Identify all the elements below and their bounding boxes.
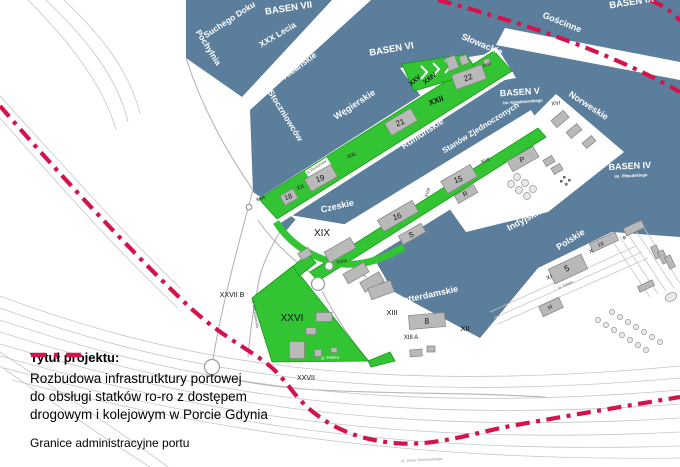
green-sliver-south: [368, 352, 395, 367]
label-building-8: 8: [424, 316, 430, 326]
roundabout-polska: [312, 278, 325, 291]
project-title-line-3: drogowym i kolejowym w Porcie Gdynia: [30, 406, 268, 424]
railway-arcs-top-left: [0, 0, 180, 308]
label-berth-b: B: [622, 235, 627, 241]
port-gdynia-map: BASEN VIIBASEN IXBASEN VIBASEN Vim. Kwia…: [0, 0, 680, 467]
label-area-xxvii: XXVII: [297, 375, 315, 382]
tank-farm: [595, 291, 678, 353]
project-title-line-2: do obsługi statków ro-ro z dostępem: [30, 388, 268, 406]
label-area-xiii-a: XIII A: [404, 335, 418, 341]
label-area-xii: XII: [460, 324, 469, 333]
label-area-xiii: XIII: [386, 308, 397, 317]
label-area-xix: XIX: [314, 228, 330, 239]
legend-row: Granice administracyjne portu: [30, 436, 268, 450]
label-area-xxvi: XXVI: [281, 313, 304, 324]
label-street-ul-janka-wisniewskiego: ul. Janka Wiśniewskiego: [401, 457, 443, 463]
project-title-line-1: Rozbudowa infrastrutktury portowej: [30, 370, 268, 388]
boundary-dash-icon: [30, 350, 82, 360]
project-title-block: Tytuł projektu: Rozbudowa infrastrutktur…: [30, 350, 268, 450]
label-area-xxvii-b: XXVII B: [220, 292, 245, 299]
legend-label: Granice administracyjne portu: [30, 436, 189, 450]
